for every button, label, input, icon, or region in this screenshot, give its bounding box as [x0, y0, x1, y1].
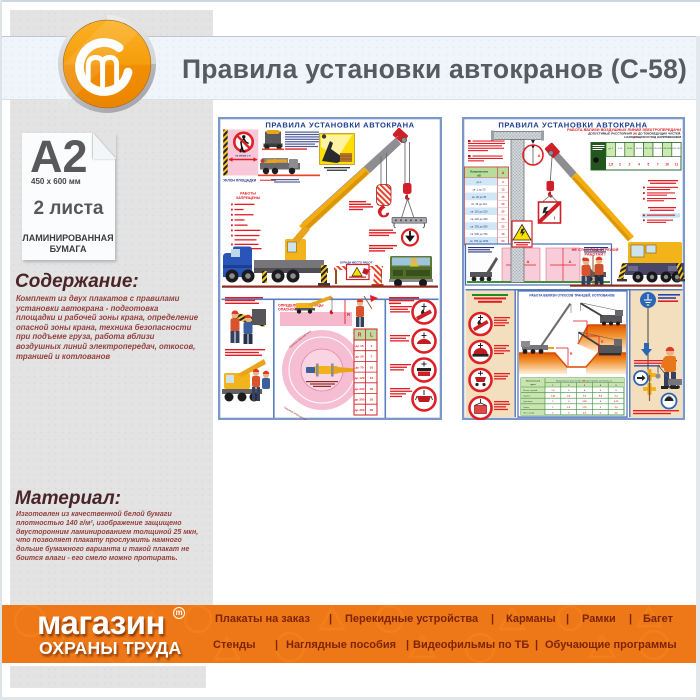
- svg-text:ПРАВИЛА УСТАНОВКИ АВТОКРАНА: ПРАВИЛА УСТАНОВКИ АВТОКРАНА: [265, 121, 414, 130]
- svg-text:до 70: до 70: [355, 365, 363, 369]
- svg-text:10: 10: [665, 163, 669, 167]
- svg-text:7: 7: [371, 355, 373, 359]
- svg-text:ОГРАДИ МЕСТО РАБОТ: ОГРАДИ МЕСТО РАБОТ: [340, 261, 373, 265]
- svg-text:до 1: до 1: [476, 180, 482, 184]
- svg-text:УКЛОН ПЛОЩАДКИ: УКЛОН ПЛОЩАДКИ: [223, 179, 257, 183]
- svg-text:св. 110 до 220: св. 110 до 220: [471, 210, 489, 214]
- svg-text:R: R: [358, 333, 362, 339]
- svg-text:7: 7: [657, 163, 659, 167]
- svg-text:РАБОТАЙ !: РАБОТАЙ !: [585, 252, 606, 257]
- svg-text:Супесь: Супесь: [523, 396, 531, 398]
- svg-text:св. 330 до 500: св. 330 до 500: [470, 224, 488, 228]
- svg-text:А: А: [502, 171, 505, 175]
- svg-text:Наименьший: Наименьший: [526, 380, 541, 383]
- svg-text:30: 30: [370, 408, 374, 412]
- svg-text:до 300: до 300: [355, 398, 365, 402]
- svg-text:220-330: 220-330: [654, 148, 663, 150]
- svg-text:до 120: до 120: [355, 376, 365, 380]
- svg-text:до 10: до 10: [355, 344, 363, 348]
- svg-text:35-110: 35-110: [636, 148, 643, 150]
- svg-text:110-220: 110-220: [644, 148, 653, 150]
- svg-text:5: 5: [647, 163, 649, 167]
- svg-text:А: А: [538, 153, 541, 158]
- svg-text:Песок, гравий: Песок, гравий: [523, 389, 538, 392]
- svg-text:Глина: Глина: [523, 407, 530, 409]
- svg-text:грунт: грунт: [530, 384, 537, 386]
- svg-text:4: 4: [371, 344, 373, 348]
- svg-text:20: 20: [370, 387, 374, 391]
- svg-text:500-750: 500-750: [672, 148, 681, 150]
- svg-text:20-35: 20-35: [627, 148, 633, 150]
- svg-text:НАХОДЯЩИХСЯ ПОД НАПРЯЖЕНИЕМ: НАХОДЯЩИХСЯ ПОД НАПРЯЖЕНИЕМ: [624, 135, 681, 139]
- svg-text:2: 2: [629, 163, 631, 167]
- svg-text:РАБОТА ВБЛИЗИ ОТКОСОВ ТРАНШЕЙ,: РАБОТА ВБЛИЗИ ОТКОСОВ ТРАНШЕЙ, КОТЛОВАНО…: [529, 294, 615, 298]
- svg-text:св. 1 до 20: св. 1 до 20: [473, 187, 486, 191]
- svg-text:11: 11: [675, 163, 679, 167]
- svg-text:до 1: до 1: [609, 148, 614, 150]
- svg-text:Суглинок: Суглинок: [523, 401, 532, 403]
- svg-text:до 450: до 450: [355, 408, 365, 412]
- svg-text:св. 750 до 1150: св. 750 до 1150: [470, 239, 489, 243]
- svg-text:св. 35 до 110: св. 35 до 110: [471, 202, 487, 206]
- svg-text:А: А: [527, 259, 530, 264]
- svg-text:1-20: 1-20: [618, 148, 623, 150]
- svg-text:4: 4: [638, 163, 640, 167]
- svg-text:10: 10: [370, 365, 374, 369]
- svg-text:А: А: [569, 259, 572, 264]
- svg-text:25: 25: [370, 398, 374, 402]
- svg-text:св. 500 до 750: св. 500 до 750: [470, 232, 488, 236]
- svg-text:НЕ МЕНЕЕ 1 М: НЕ МЕНЕЕ 1 М: [236, 156, 251, 158]
- svg-text:ЗАПРЕЩЕНЫ: ЗАПРЕЩЕНЫ: [236, 196, 261, 200]
- svg-text:L: L: [370, 333, 373, 339]
- svg-text:2: 2: [619, 163, 621, 167]
- svg-text:15: 15: [370, 376, 374, 380]
- svg-text:до 20: до 20: [355, 355, 363, 359]
- svg-text:до 200: до 200: [355, 387, 365, 391]
- svg-text:1,5: 1,5: [608, 163, 613, 167]
- svg-text:св. 20 до 35: св. 20 до 35: [472, 195, 487, 199]
- svg-text:св. 220 до 330: св. 220 до 330: [470, 217, 488, 221]
- svg-text:330-500: 330-500: [663, 148, 672, 150]
- svg-text:Лесс сухой: Лесс сухой: [523, 411, 535, 414]
